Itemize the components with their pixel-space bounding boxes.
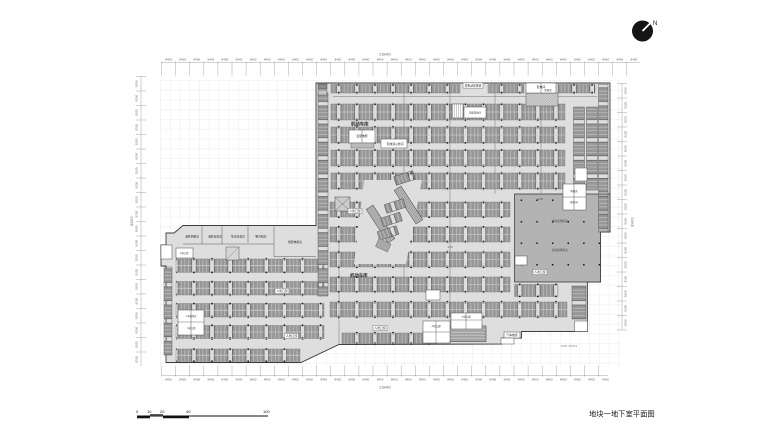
svg-text:8100: 8100 [624,102,628,109]
svg-text:超市卖场库房: 超市卖场库房 [552,248,568,252]
svg-text:8400: 8400 [391,378,398,382]
svg-text:218400: 218400 [379,53,390,57]
svg-text:人防口部: 人防口部 [461,315,471,319]
svg-text:8400: 8400 [207,58,214,62]
svg-text:8400: 8400 [377,58,384,62]
svg-text:8400: 8400 [349,378,356,382]
svg-text:人防口部: 人防口部 [276,289,287,293]
svg-text:20: 20 [160,409,165,414]
svg-text:8400: 8400 [320,58,327,62]
svg-text:8100: 8100 [624,232,628,239]
svg-text:机动车库: 机动车库 [351,121,369,128]
svg-text:8400: 8400 [574,378,581,382]
svg-text:8400: 8400 [306,378,313,382]
svg-text:8100: 8100 [135,95,139,102]
svg-text:8400: 8400 [631,58,638,62]
svg-text:超市卖场库房: 超市卖场库房 [552,219,568,223]
svg-text:8400: 8400 [334,58,341,62]
svg-text:风机房: 风机房 [570,189,578,193]
svg-text:8400: 8400 [391,58,398,62]
svg-text:8400: 8400 [292,58,299,62]
svg-text:8100: 8100 [135,283,139,290]
svg-text:人防口部: 人防口部 [534,270,545,274]
svg-text:地块一地下室平面图: 地块一地下室平面图 [589,410,655,419]
svg-text:配电间: 配电间 [570,200,578,204]
svg-text:8100: 8100 [135,341,139,348]
svg-text:8100: 8100 [624,116,628,123]
svg-text:8400: 8400 [518,58,525,62]
svg-text:100: 100 [263,409,270,414]
svg-text:8400: 8400 [292,378,299,382]
svg-text:8100: 8100 [135,167,139,174]
svg-text:8400: 8400 [278,58,285,62]
svg-text:生活水泵房: 生活水泵房 [231,235,245,239]
svg-text:8400: 8400 [602,58,609,62]
svg-text:供配电机房: 供配电机房 [288,240,302,244]
svg-text:8400: 8400 [504,58,511,62]
svg-text:8100: 8100 [624,160,628,167]
svg-text:8100: 8100 [135,109,139,116]
svg-text:10: 10 [147,409,152,414]
svg-text:8400: 8400 [377,378,384,382]
svg-text:8400: 8400 [588,378,595,382]
svg-text:8400: 8400 [264,378,271,382]
svg-text:8400: 8400 [616,58,623,62]
svg-text:8400: 8400 [574,58,581,62]
svg-text:8400: 8400 [518,378,525,382]
svg-text:8400: 8400 [222,378,229,382]
svg-text:40: 40 [186,409,191,414]
svg-text:机动车库: 机动车库 [350,272,368,279]
svg-text:8400: 8400 [532,378,539,382]
svg-text:8400: 8400 [461,58,468,62]
svg-text:8400: 8400 [250,378,257,382]
svg-text:8400: 8400 [207,378,214,382]
svg-text:8400: 8400 [546,58,553,62]
svg-text:8400: 8400 [447,378,454,382]
svg-text:8400: 8400 [165,378,172,382]
svg-text:8100: 8100 [624,290,628,297]
svg-text:8400: 8400 [264,58,271,62]
svg-text:1.70: 1.70 [447,245,453,249]
svg-text:泡沫消防间: 泡沫消防间 [469,111,482,115]
svg-text:汽车坡道: 汽车坡道 [506,333,517,337]
svg-text:8400: 8400 [165,58,172,62]
svg-text:8100: 8100 [624,305,628,312]
svg-text:8100: 8100 [624,319,628,326]
svg-text:消防水泵房: 消防水泵房 [208,235,222,239]
svg-text:8400: 8400 [461,378,468,382]
svg-text:N: N [653,21,657,27]
svg-text:8100: 8100 [135,138,139,145]
svg-text:8400: 8400 [475,58,482,62]
svg-text:人防口部: 人防口部 [349,209,360,213]
svg-text:8100: 8100 [624,247,628,254]
svg-text:8100: 8100 [135,153,139,160]
svg-text:8400: 8400 [363,58,370,62]
svg-text:人防口部: 人防口部 [431,324,441,328]
svg-text:8100: 8100 [624,87,628,94]
svg-text:8400: 8400 [236,378,243,382]
svg-text:8400: 8400 [306,58,313,62]
svg-text:8400: 8400 [405,378,412,382]
svg-text:8400: 8400 [334,378,341,382]
svg-text:8400: 8400 [193,58,200,62]
svg-text:8400: 8400 [193,378,200,382]
svg-text:8400: 8400 [490,58,497,62]
svg-text:8400: 8400 [236,58,243,62]
svg-text:8400: 8400 [433,378,440,382]
svg-text:8400: 8400 [179,378,186,382]
svg-text:人防口部: 人防口部 [374,326,385,330]
svg-text:8400: 8400 [222,58,229,62]
svg-text:8100: 8100 [135,254,139,261]
svg-text:8400: 8400 [447,58,454,62]
svg-text:8100: 8100 [135,124,139,131]
svg-text:变配电所: 变配电所 [356,134,367,138]
svg-text:8100: 8100 [135,225,139,232]
svg-text:8100: 8100 [135,298,139,305]
svg-text:8100: 8100 [624,174,628,181]
svg-text:8100: 8100 [135,356,139,363]
svg-text:8400: 8400 [349,58,356,62]
svg-text:83400: 83400 [631,217,635,227]
svg-text:8100: 8100 [624,218,628,225]
svg-text:83400: 83400 [130,216,134,226]
svg-text:8400: 8400 [560,378,567,382]
svg-text:8400: 8400 [419,58,426,62]
svg-text:8400: 8400 [278,378,285,382]
svg-text:8400: 8400 [602,378,609,382]
svg-text:8100: 8100 [624,189,628,196]
svg-text:人防口部: 人防口部 [286,334,297,338]
svg-text:8100: 8100 [135,312,139,319]
svg-text:8400: 8400 [475,378,482,382]
svg-text:8100: 8100 [624,276,628,283]
svg-text:泡沫消火栓间: 泡沫消火栓间 [387,142,404,146]
svg-text:8100: 8100 [135,211,139,218]
svg-text:8400: 8400 [363,378,370,382]
svg-text:8100: 8100 [135,269,139,276]
svg-text:风机房: 风机房 [544,88,552,92]
svg-text:8400: 8400 [419,378,426,382]
svg-text:8400: 8400 [588,58,595,62]
svg-text:8400: 8400 [532,58,539,62]
svg-text:8100: 8100 [135,240,139,247]
svg-text:8400: 8400 [433,58,440,62]
svg-text:8100: 8100 [135,327,139,334]
svg-text:8100: 8100 [624,261,628,268]
svg-text:8400: 8400 [405,58,412,62]
svg-text:8100: 8100 [135,196,139,203]
svg-text:8400: 8400 [490,378,497,382]
svg-text:8100: 8100 [135,80,139,87]
svg-text:非机动车坡道: 非机动车坡道 [465,84,482,88]
svg-text:8100: 8100 [624,131,628,138]
svg-text:FXXD. 23XXY1: FXXD. 23XXY1 [561,345,578,348]
svg-text:8100: 8100 [624,145,628,152]
svg-text:1.70: 1.70 [537,197,543,201]
svg-text:制冷机房: 制冷机房 [255,235,266,239]
svg-text:8400: 8400 [250,58,257,62]
svg-text:8400: 8400 [320,378,327,382]
svg-text:消防控制室: 消防控制室 [185,235,199,239]
svg-text:8400: 8400 [546,378,553,382]
svg-text:218400: 218400 [379,386,390,390]
svg-text:8100: 8100 [624,203,628,210]
svg-text:8400: 8400 [560,58,567,62]
svg-text:8400: 8400 [504,378,511,382]
svg-text:8400: 8400 [179,58,186,62]
svg-text:8100: 8100 [135,182,139,189]
